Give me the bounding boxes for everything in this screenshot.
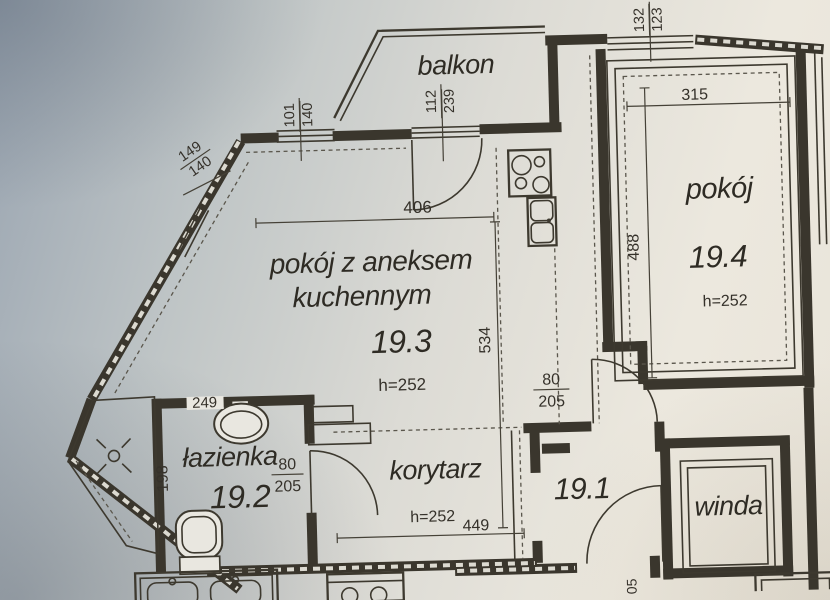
room-194-name: pokój bbox=[684, 172, 755, 206]
svg-text:249: 249 bbox=[192, 394, 217, 412]
corridor-cabinet bbox=[308, 405, 371, 445]
hall-191-number: 19.1 bbox=[553, 472, 610, 506]
room-194-number: 19.4 bbox=[688, 238, 747, 275]
neighbor-stove-icon bbox=[327, 572, 404, 600]
entry-door-dim-cut: 05 bbox=[623, 578, 639, 594]
window-dim-101-140: 101 140 bbox=[282, 98, 317, 133]
svg-text:101: 101 bbox=[282, 103, 299, 128]
room-label-balkon: balkon bbox=[417, 49, 494, 81]
stove-icon bbox=[508, 149, 551, 196]
balcony-door-window-112-239 bbox=[411, 126, 479, 138]
svg-text:205: 205 bbox=[538, 393, 565, 411]
svg-text:80: 80 bbox=[542, 371, 560, 388]
window-dim-112-239: 112 239 bbox=[423, 84, 458, 119]
room-193-name-line2: kuchennym bbox=[292, 279, 432, 314]
room-193-number: 19.3 bbox=[370, 323, 432, 361]
corridor-name: korytarz bbox=[389, 453, 483, 485]
kitchen-sink-icon bbox=[527, 197, 556, 246]
dimension-406: 406 bbox=[403, 198, 432, 218]
dimension-534: 534 bbox=[477, 327, 495, 354]
labels: balkon pokój z aneksem kuchennym 19.3 h=… bbox=[142, 1, 765, 600]
photographed-floor-plan: balkon pokój z aneksem kuchennym 19.3 h=… bbox=[0, 0, 830, 600]
toilet bbox=[175, 510, 223, 574]
kitchen-fixtures bbox=[508, 149, 556, 246]
dimension-249: 249 bbox=[186, 394, 223, 412]
bathroom-name: łazienka bbox=[182, 441, 278, 473]
bathroom-number: 19.2 bbox=[209, 478, 271, 516]
dimension-198: 198 bbox=[154, 465, 172, 492]
bathroom-door-arc bbox=[310, 449, 378, 517]
dimension-449: 449 bbox=[462, 517, 489, 535]
svg-text:132: 132 bbox=[631, 8, 648, 33]
elevator-label: winda bbox=[694, 490, 763, 522]
room-193-height: h=252 bbox=[378, 375, 426, 395]
svg-text:205: 205 bbox=[274, 478, 301, 496]
svg-text:123: 123 bbox=[649, 7, 666, 32]
room-194-door-dim: 80 205 bbox=[538, 371, 566, 411]
svg-text:239: 239 bbox=[441, 89, 458, 114]
corridor-height: h=252 bbox=[410, 508, 455, 526]
svg-text:112: 112 bbox=[424, 90, 441, 114]
dimension-315: 315 bbox=[681, 86, 708, 104]
floor-plan-drawing: balkon pokój z aneksem kuchennym 19.3 h=… bbox=[0, 0, 830, 600]
room-194-height: h=252 bbox=[702, 292, 747, 310]
bathroom-door-dim: 80 205 bbox=[274, 456, 302, 496]
svg-text:140: 140 bbox=[300, 102, 317, 127]
svg-text:80: 80 bbox=[278, 456, 296, 473]
window-dim-132-123: 132 123 bbox=[631, 3, 666, 36]
room-193-name-line1: pokój z aneksem bbox=[268, 243, 473, 279]
window-dim-149-140: 149 140 bbox=[171, 135, 220, 183]
window-101-140 bbox=[277, 130, 335, 143]
svg-text:05: 05 bbox=[623, 578, 639, 594]
dimension-488: 488 bbox=[625, 234, 643, 261]
